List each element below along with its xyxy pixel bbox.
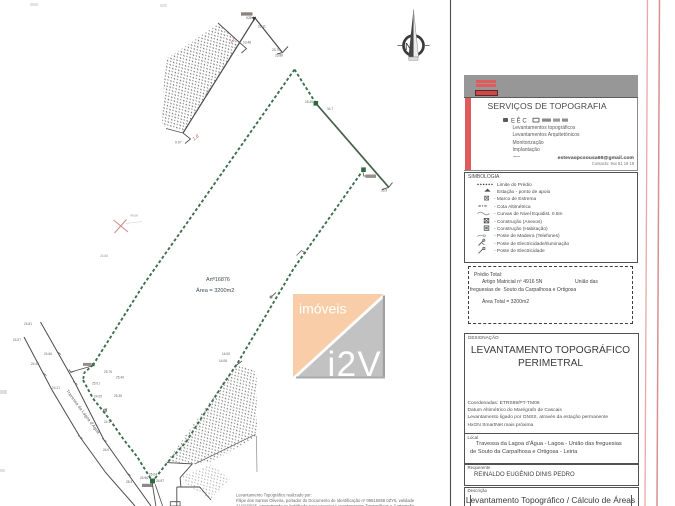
svg-text:24.81: 24.81	[24, 322, 32, 326]
svg-text:24.88: 24.88	[100, 254, 108, 258]
svg-text:25.76: 25.76	[104, 370, 112, 374]
svg-text:Área = 3200m2: Área = 3200m2	[196, 287, 234, 294]
svg-text:imóveis: imóveis	[299, 301, 346, 317]
svg-text:24.21: 24.21	[52, 386, 60, 390]
svg-text:V25.66: V25.66	[246, 16, 256, 20]
svg-text:25.3: 25.3	[126, 480, 132, 484]
svg-text:24.96: 24.96	[140, 476, 148, 480]
svg-text:9.97: 9.97	[175, 141, 182, 145]
svg-text:25.36: 25.36	[114, 394, 122, 398]
svg-text:36.9: 36.9	[381, 189, 387, 193]
svg-text:Artº16876: Artº16876	[206, 277, 230, 283]
svg-text:E Ê C: E Ê C	[511, 117, 527, 125]
svg-text:23.86: 23.86	[275, 54, 283, 58]
svg-text:Levantamento Topográfico reali: Levantamento Topográfico realizado por:	[236, 493, 312, 498]
svg-text:25.01: 25.01	[92, 382, 100, 386]
svg-text:Filipe dos Santos Oliveira, po: Filipe dos Santos Oliveira, portador do …	[236, 498, 415, 503]
svg-text:23.70: 23.70	[272, 48, 280, 52]
svg-text:24.66: 24.66	[44, 352, 52, 356]
svg-text:24.57: 24.57	[13, 338, 21, 342]
svg-text:24.97: 24.97	[156, 479, 164, 483]
svg-text:25.46: 25.46	[305, 100, 313, 104]
svg-text:24.0: 24.0	[103, 448, 109, 452]
svg-text:1.8: 1.8	[191, 133, 200, 142]
svg-text:24.3: 24.3	[104, 420, 110, 424]
svg-text:V9.06: V9.06	[130, 214, 138, 218]
svg-text:26.04: 26.04	[149, 473, 157, 477]
svg-text:25.11: 25.11	[258, 25, 266, 29]
svg-text:14.00: 14.00	[222, 352, 230, 356]
svg-text:25.46: 25.46	[116, 376, 124, 380]
svg-text:10.46: 10.46	[243, 41, 251, 45]
svg-text:24.43: 24.43	[31, 362, 39, 366]
svg-text:24.05: 24.05	[94, 395, 102, 399]
svg-text:14.06: 14.06	[219, 359, 227, 363]
svg-text:34.7: 34.7	[327, 107, 333, 111]
svg-text:i2V: i2V	[327, 345, 382, 379]
